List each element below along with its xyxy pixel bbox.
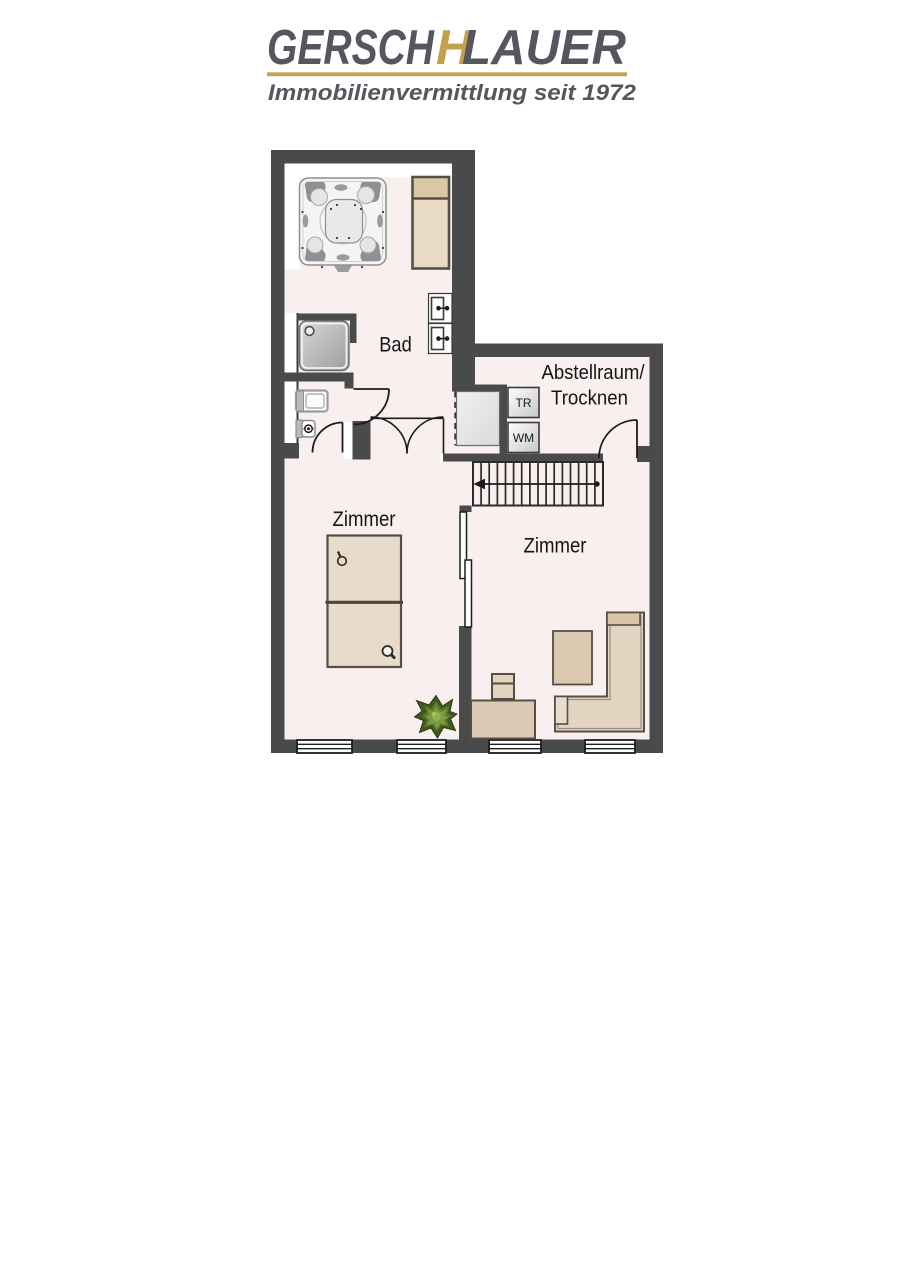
svg-text:Zimmer: Zimmer <box>524 535 587 558</box>
svg-text:Immobilienvermittlung seit 197: Immobilienvermittlung seit 1972 <box>268 80 637 105</box>
svg-text:Bad: Bad <box>379 334 412 357</box>
svg-text:TR: TR <box>516 396 532 410</box>
svg-text:Trocknen: Trocknen <box>551 387 628 410</box>
svg-text:GERSCH: GERSCH <box>267 21 435 75</box>
svg-text:WM: WM <box>513 431 534 445</box>
svg-text:Abstellraum/: Abstellraum/ <box>542 361 645 384</box>
svg-text:Zimmer: Zimmer <box>333 508 396 531</box>
svg-text:LAUER: LAUER <box>462 21 627 75</box>
